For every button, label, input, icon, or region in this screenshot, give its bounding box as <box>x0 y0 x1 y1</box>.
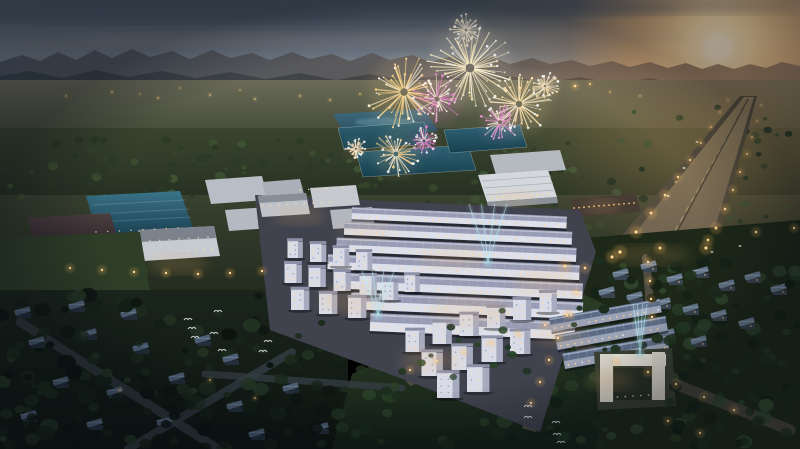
render-canvas <box>0 0 800 449</box>
aerial-township-render <box>0 0 800 449</box>
vignette <box>0 0 800 449</box>
